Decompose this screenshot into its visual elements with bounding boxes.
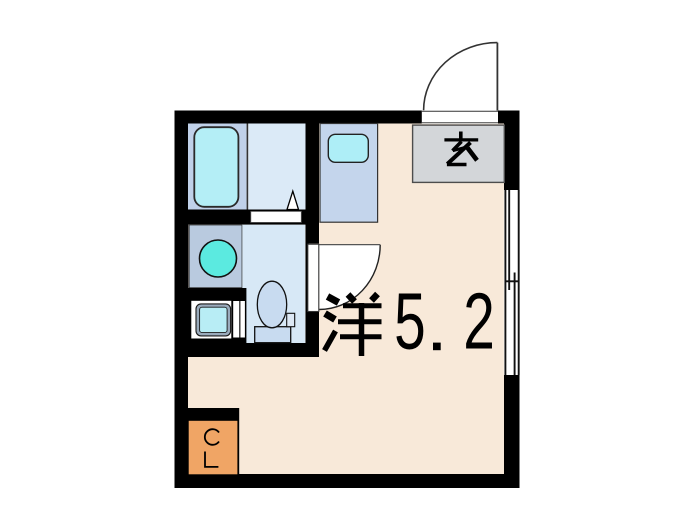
svg-text:2: 2 <box>463 276 495 366</box>
svg-text:5: 5 <box>394 276 426 366</box>
